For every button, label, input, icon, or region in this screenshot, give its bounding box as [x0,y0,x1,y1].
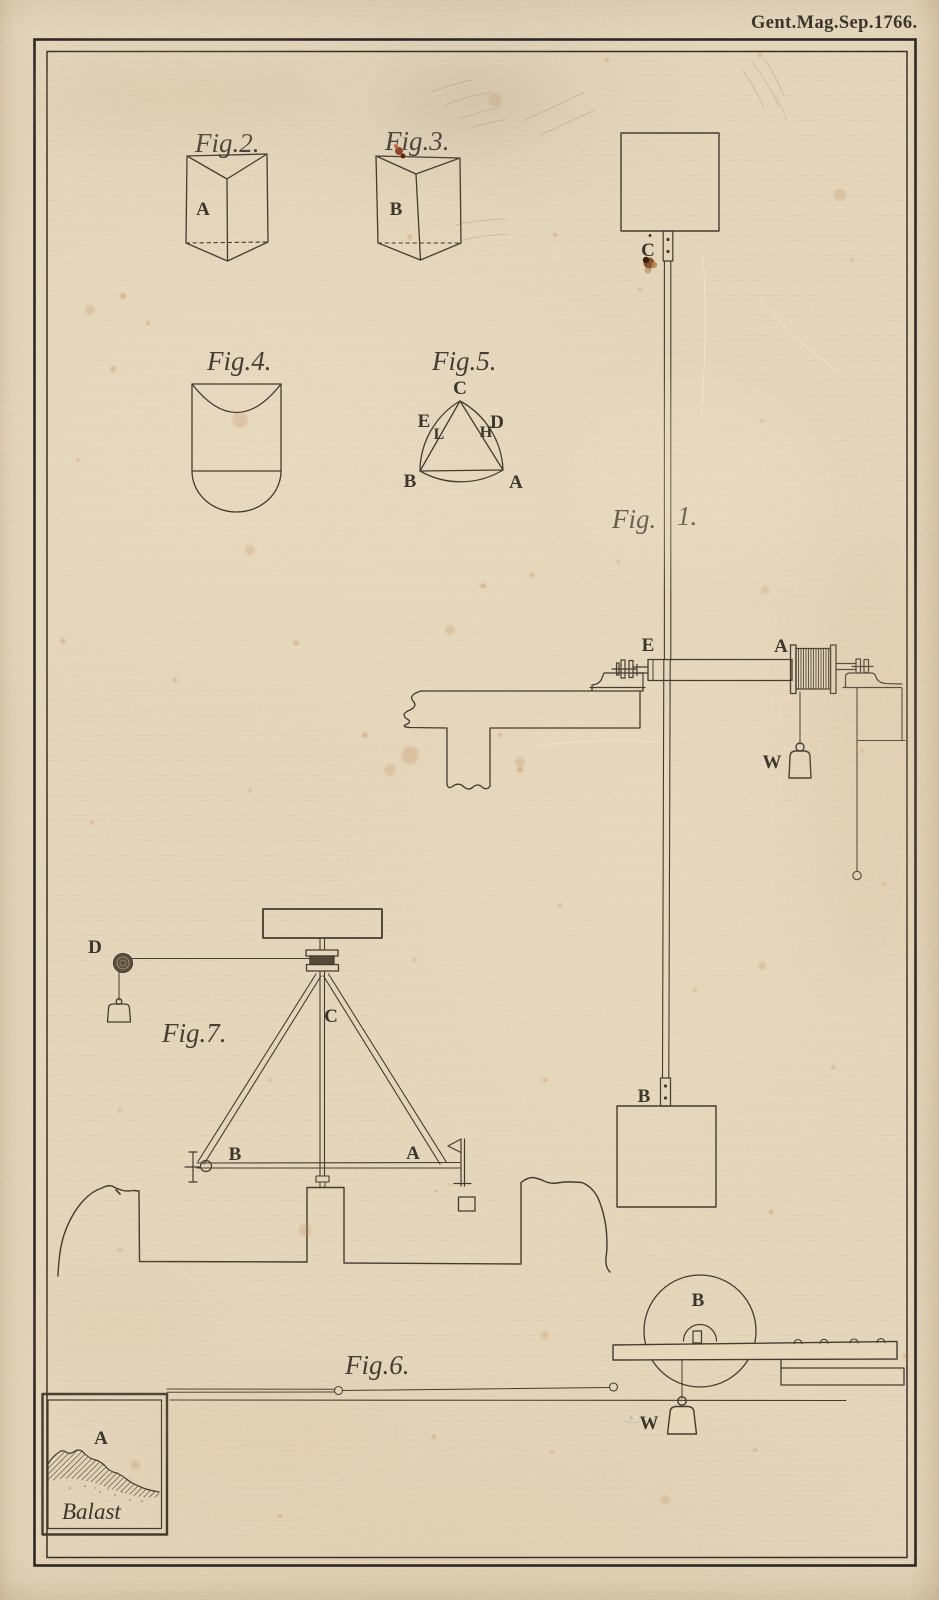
svg-text:Fig.7.: Fig.7. [161,1018,227,1048]
svg-text:Balast: Balast [62,1499,121,1524]
svg-text:L: L [434,426,445,443]
svg-text:C: C [453,378,467,399]
svg-text:D: D [88,937,102,958]
svg-text:H: H [480,424,493,441]
svg-text:B: B [229,1144,242,1165]
svg-text:B: B [404,471,417,492]
svg-text:A: A [774,636,788,657]
svg-text:A: A [196,199,210,220]
svg-text:Fig.4.: Fig.4. [206,346,272,376]
svg-text:Gent.Mag.Sep.1766.: Gent.Mag.Sep.1766. [751,13,918,33]
svg-text:B: B [638,1086,651,1107]
svg-text:Fig.5.: Fig.5. [431,346,497,376]
svg-text:Fig.6.: Fig.6. [344,1350,410,1380]
svg-text:A: A [406,1143,420,1164]
svg-text:E: E [418,411,431,432]
svg-text:B: B [390,199,403,220]
svg-text:B: B [692,1290,705,1311]
svg-text:C: C [324,1006,338,1027]
svg-text:A: A [94,1428,108,1449]
svg-text:A: A [509,472,523,493]
svg-text:W: W [640,1413,659,1434]
svg-text:E: E [642,635,655,656]
svg-text:W: W [763,752,782,773]
